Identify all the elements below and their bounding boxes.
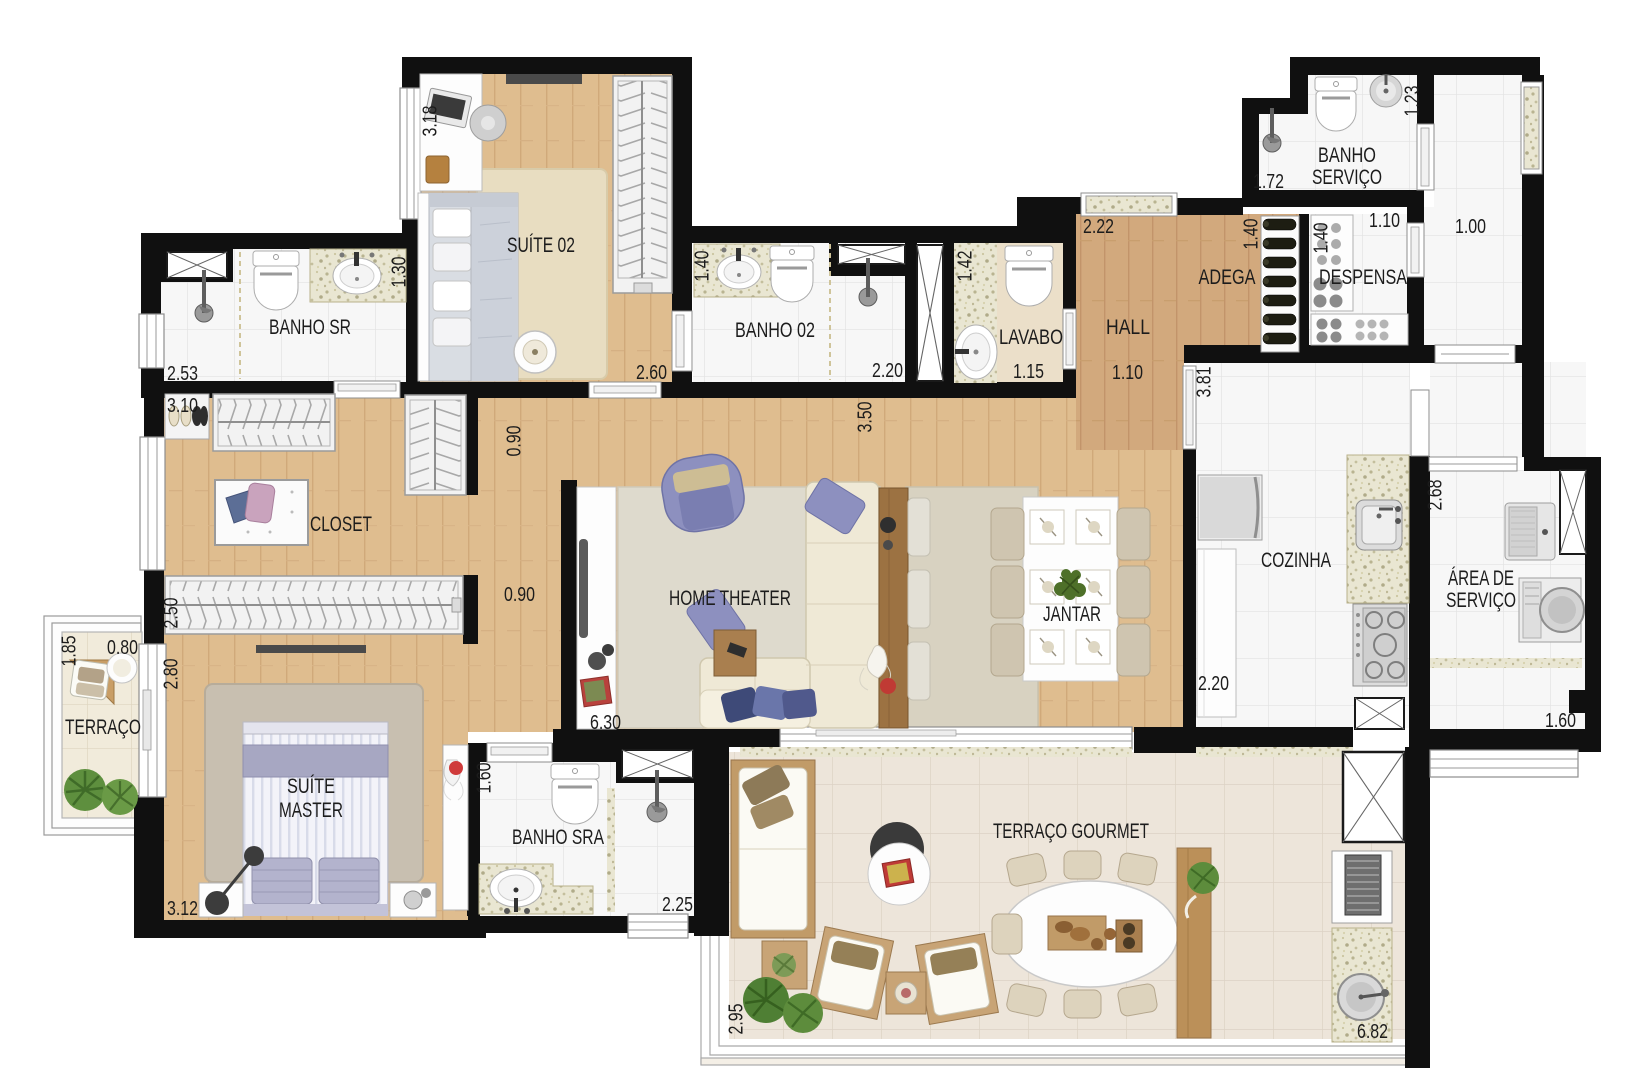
svg-text:JANTAR: JANTAR xyxy=(1043,603,1101,626)
svg-text:1.85: 1.85 xyxy=(58,636,80,667)
svg-text:3.10: 3.10 xyxy=(167,395,198,417)
svg-text:1.30: 1.30 xyxy=(388,257,410,288)
svg-text:TERRAÇO: TERRAÇO xyxy=(65,716,141,739)
svg-text:1.23: 1.23 xyxy=(1401,86,1423,117)
svg-text:BANHO 02: BANHO 02 xyxy=(735,319,815,342)
svg-text:1.10: 1.10 xyxy=(1369,210,1400,232)
svg-text:SERVIÇO: SERVIÇO xyxy=(1446,589,1516,612)
svg-text:6.30: 6.30 xyxy=(590,712,621,734)
svg-text:2.22: 2.22 xyxy=(1083,216,1114,238)
svg-text:2.80: 2.80 xyxy=(160,659,182,690)
svg-text:2.25: 2.25 xyxy=(662,894,693,916)
svg-text:1.15: 1.15 xyxy=(1013,361,1044,383)
svg-text:DESPENSA: DESPENSA xyxy=(1319,266,1407,289)
svg-text:3.18: 3.18 xyxy=(419,106,441,137)
svg-text:0.90: 0.90 xyxy=(503,426,525,457)
svg-text:1.42: 1.42 xyxy=(954,251,976,282)
svg-text:SUÍTE 02: SUÍTE 02 xyxy=(507,234,575,257)
svg-text:1.00: 1.00 xyxy=(1455,216,1486,238)
svg-text:SUÍTE: SUÍTE xyxy=(287,775,335,798)
svg-text:1.10: 1.10 xyxy=(1112,362,1143,384)
svg-text:LAVABO: LAVABO xyxy=(999,326,1063,349)
svg-text:2.20: 2.20 xyxy=(872,360,903,382)
svg-text:3.50: 3.50 xyxy=(854,402,876,433)
svg-text:1.60: 1.60 xyxy=(473,763,495,794)
svg-text:COZINHA: COZINHA xyxy=(1261,549,1331,572)
svg-text:1.40: 1.40 xyxy=(691,251,713,282)
svg-text:2.50: 2.50 xyxy=(160,598,182,629)
svg-text:CLOSET: CLOSET xyxy=(310,513,372,536)
svg-text:2.60: 2.60 xyxy=(636,362,667,384)
svg-text:TERRAÇO GOURMET: TERRAÇO GOURMET xyxy=(993,820,1149,843)
svg-text:2.95: 2.95 xyxy=(725,1004,747,1035)
svg-text:2.68: 2.68 xyxy=(1424,480,1446,511)
svg-text:BANHO SRA: BANHO SRA xyxy=(512,826,604,849)
svg-text:BANHO: BANHO xyxy=(1318,144,1376,167)
svg-text:1.40: 1.40 xyxy=(1240,219,1262,250)
svg-text:0.90: 0.90 xyxy=(504,584,535,606)
svg-text:2.20: 2.20 xyxy=(1198,673,1229,695)
svg-text:ÁREA DE: ÁREA DE xyxy=(1448,567,1514,590)
svg-text:0.80: 0.80 xyxy=(107,637,138,659)
svg-text:BANHO SR: BANHO SR xyxy=(269,316,351,339)
svg-text:1.60: 1.60 xyxy=(1545,710,1576,732)
svg-text:ADEGA: ADEGA xyxy=(1199,266,1256,289)
svg-text:3.81: 3.81 xyxy=(1193,367,1215,398)
svg-text:3.12: 3.12 xyxy=(167,898,198,920)
svg-text:1.40: 1.40 xyxy=(1310,223,1332,254)
svg-text:6.82: 6.82 xyxy=(1357,1021,1388,1043)
svg-text:2.53: 2.53 xyxy=(167,363,198,385)
svg-text:1.72: 1.72 xyxy=(1253,171,1284,193)
svg-text:HOME THEATER: HOME THEATER xyxy=(669,587,791,610)
svg-text:SERVIÇO: SERVIÇO xyxy=(1312,166,1382,189)
svg-text:MASTER: MASTER xyxy=(279,799,343,822)
svg-text:HALL: HALL xyxy=(1106,316,1150,339)
